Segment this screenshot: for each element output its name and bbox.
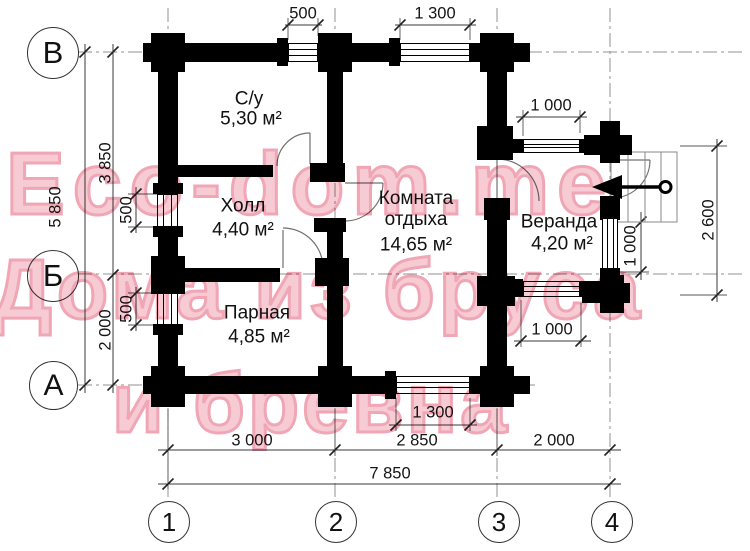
dim-left-3850: 3 850 — [97, 142, 116, 183]
room-area-hall: 4,40 м² — [212, 221, 274, 242]
wall-post — [584, 135, 632, 155]
dim-bottom-2850: 2 850 — [396, 432, 437, 451]
window-pane — [523, 286, 580, 292]
axis-col-3-label: 3 — [492, 507, 506, 538]
room-name-veranda: Веранда — [521, 213, 598, 234]
wall-post — [389, 38, 400, 66]
window-symbol — [523, 281, 580, 297]
wall-post — [480, 33, 514, 72]
axis-row-a: А — [29, 361, 78, 410]
axis-row-b-label: Б — [43, 258, 63, 294]
window-symbol — [400, 43, 470, 62]
dim-total-7850: 7 850 — [369, 465, 410, 484]
wall-post — [151, 366, 185, 407]
axis-col-1: 1 — [148, 501, 190, 543]
wall-post — [151, 33, 185, 72]
wall-post — [314, 218, 346, 232]
dim-bottom-window-1300: 1 300 — [412, 404, 453, 423]
axis-col-3: 3 — [478, 501, 520, 543]
door-arc-veranda — [497, 159, 539, 201]
window-symbol — [157, 194, 178, 227]
window-pane — [400, 49, 470, 56]
wall-post — [315, 258, 349, 286]
dim-left-window2-500: 500 — [118, 295, 137, 323]
window-symbol — [396, 376, 470, 394]
room-name-restroom: Комната отдыха — [363, 189, 469, 231]
window-symbol — [602, 218, 618, 269]
dim-right-2600: 2 600 — [700, 199, 719, 240]
wall-hall-parnaya-partition — [178, 268, 280, 282]
wall-post — [153, 183, 183, 194]
window-pane — [396, 382, 470, 388]
axis-col-4: 4 — [591, 501, 633, 543]
dim-left-2000: 2 000 — [97, 309, 116, 350]
wall-post — [600, 196, 620, 220]
axis-col-2: 2 — [315, 501, 357, 543]
wall-post — [582, 283, 630, 303]
window-pane — [163, 194, 173, 227]
axis-row-v: В — [27, 27, 79, 79]
dim-right-bottom-1000: 1 000 — [531, 321, 572, 340]
axis-col-2-label: 2 — [329, 507, 343, 538]
wall-post — [310, 163, 345, 182]
room-area-restroom: 14,65 м² — [380, 236, 452, 257]
dim-top-1300: 1 300 — [414, 5, 455, 24]
wall-post — [277, 38, 288, 66]
room-area-veranda: 4,20 м² — [531, 235, 593, 256]
wall-post — [477, 126, 513, 160]
axis-row-v-label: В — [43, 35, 64, 71]
axis-col-1-label: 1 — [162, 507, 176, 538]
wall-grid2-lower — [327, 218, 343, 376]
dim-right-top-1000: 1 000 — [530, 97, 571, 116]
room-name-hall: Холл — [221, 197, 266, 218]
room-name-parnaya: Парная — [224, 304, 290, 325]
dim-bottom-3000: 3 000 — [231, 432, 272, 451]
window-pane — [523, 144, 580, 149]
dim-left-5850: 5 850 — [47, 186, 66, 227]
window-pane — [607, 218, 614, 269]
wall-grid2-upper — [327, 62, 343, 168]
dim-left-window-500: 500 — [118, 196, 137, 224]
window-symbol — [288, 43, 318, 62]
wall-post — [318, 33, 352, 72]
window-pane — [163, 293, 173, 325]
room-area-parnaya: 4,85 м² — [228, 328, 290, 349]
wall-post — [484, 198, 510, 220]
wall-post — [385, 371, 396, 399]
axis-row-a-label: А — [43, 369, 63, 403]
wall-post — [153, 324, 183, 335]
dim-bottom-2000: 2 000 — [533, 432, 574, 451]
wall-su-partition — [178, 165, 273, 177]
window-symbol — [157, 293, 178, 325]
wall-post — [153, 282, 183, 293]
window-pane — [288, 49, 318, 56]
wall-post — [318, 366, 352, 407]
axis-row-b: Б — [27, 250, 79, 302]
dim-top-500: 500 — [289, 5, 317, 24]
floor-plan-canvas: С/у 5,30 м² Холл 4,40 м² Комната отдыха … — [0, 0, 750, 551]
dim-right-window-1000: 1 000 — [622, 225, 641, 266]
wall-post — [480, 366, 514, 407]
room-area-su: 5,30 м² — [220, 110, 282, 131]
axis-col-4-label: 4 — [605, 507, 619, 538]
wall-post — [477, 276, 515, 306]
room-name-su: С/у — [235, 90, 264, 111]
door-arc-su — [277, 133, 310, 166]
window-symbol — [523, 139, 580, 153]
wall-post — [153, 226, 183, 237]
